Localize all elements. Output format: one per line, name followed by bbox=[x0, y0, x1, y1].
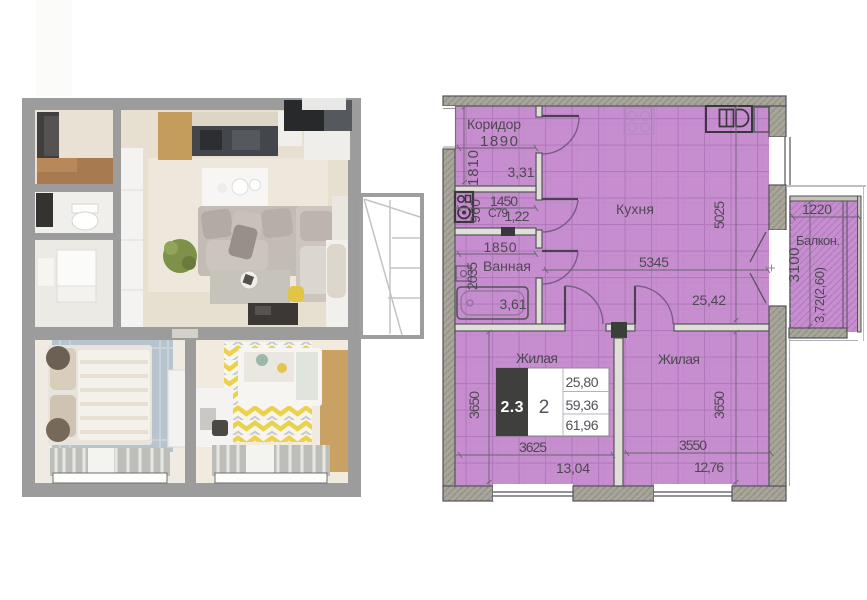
svg-text:12,76: 12,76 bbox=[694, 459, 724, 475]
svg-text:59,36: 59,36 bbox=[566, 397, 599, 413]
svg-text:Кухня: Кухня bbox=[616, 201, 654, 217]
svg-text:1810: 1810 bbox=[465, 150, 482, 186]
svg-text:Коридор: Коридор bbox=[467, 116, 521, 132]
svg-text:3650: 3650 bbox=[466, 391, 482, 419]
svg-text:1850: 1850 bbox=[484, 239, 517, 255]
svg-text:2.3: 2.3 bbox=[501, 399, 524, 416]
svg-text:3625: 3625 bbox=[519, 439, 547, 455]
svg-text:3,61: 3,61 bbox=[500, 296, 527, 312]
svg-text:2035: 2035 bbox=[464, 262, 480, 290]
svg-text:1,22: 1,22 bbox=[505, 208, 530, 224]
svg-text:2: 2 bbox=[539, 397, 550, 418]
svg-text:3550: 3550 bbox=[679, 437, 707, 453]
svg-text:3,31: 3,31 bbox=[508, 164, 535, 180]
svg-text:25,80: 25,80 bbox=[566, 374, 599, 390]
svg-text:960: 960 bbox=[467, 199, 483, 223]
svg-text:61,96: 61,96 bbox=[566, 417, 599, 433]
svg-text:25,42: 25,42 bbox=[692, 292, 726, 308]
svg-text:1890: 1890 bbox=[480, 133, 518, 150]
svg-text:5345: 5345 bbox=[639, 254, 669, 270]
svg-text:3100: 3100 bbox=[786, 248, 803, 283]
svg-text:1220: 1220 bbox=[802, 201, 832, 217]
svg-text:Жилая: Жилая bbox=[516, 350, 558, 366]
svg-text:13,04: 13,04 bbox=[556, 460, 590, 476]
svg-text:3650: 3650 bbox=[711, 391, 727, 419]
svg-text:5025: 5025 bbox=[711, 201, 727, 229]
svg-text:3,72(2,60): 3,72(2,60) bbox=[812, 267, 827, 323]
svg-text:Балкон.: Балкон. bbox=[796, 233, 840, 248]
svg-text:Ванная: Ванная bbox=[483, 258, 531, 274]
svg-text:Жилая: Жилая bbox=[658, 351, 700, 367]
